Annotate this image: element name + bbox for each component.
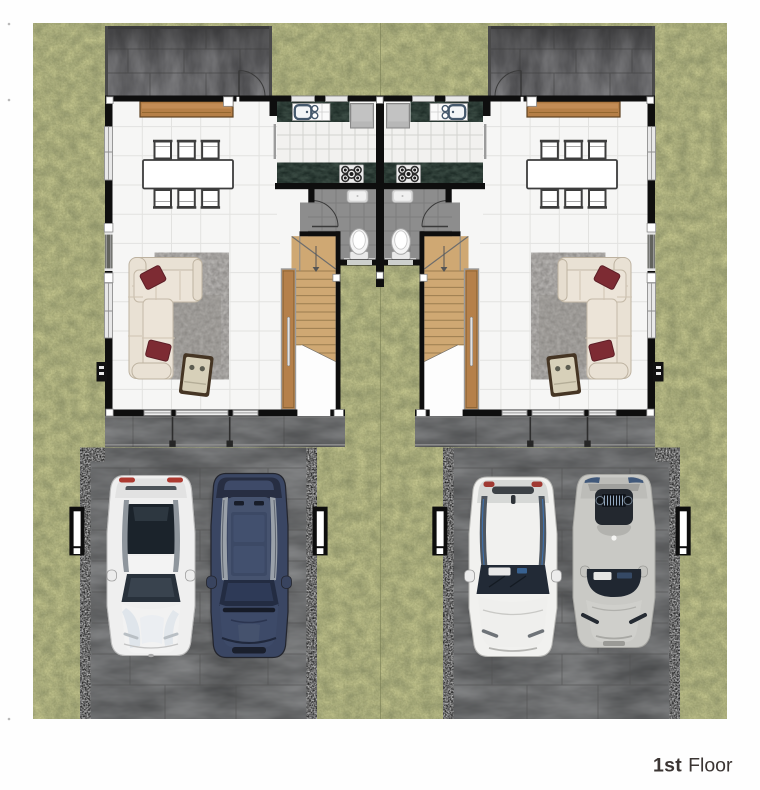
svg-text:1stFloor: 1stFloor bbox=[653, 755, 733, 777]
